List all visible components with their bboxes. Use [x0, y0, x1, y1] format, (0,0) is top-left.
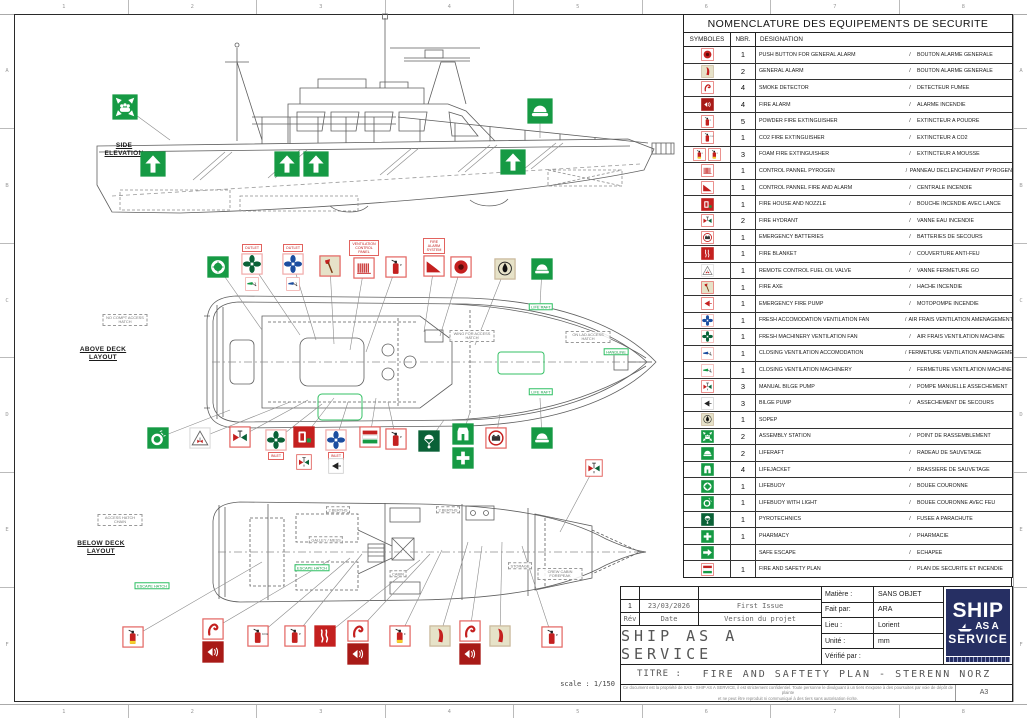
revision-desc: First Issue — [699, 600, 821, 612]
designation-cell: CO2 FIRE EXTINGUISHER/EXTINCTEUR A CO2 — [756, 130, 1012, 146]
designation-cell: CONTROL PANNEL FIRE AND ALARM/CENTRALE I… — [756, 180, 1012, 196]
fire-blanket-icon — [701, 247, 714, 260]
closing-vent-green-icon — [701, 364, 714, 377]
safety-plan-icon — [701, 563, 714, 576]
smoke-detector-icon — [347, 620, 369, 642]
table-row: SAFE ESCAPE/ECHAPEE — [684, 545, 1012, 562]
deck-tag: ESCAPE HATCH — [295, 564, 330, 571]
field-value: Lorient — [874, 622, 943, 629]
symbol-cell: FF — [684, 147, 731, 163]
table-row: FF3FOAM FIRE EXTINGUISHER/EXTINCTEUR A M… — [684, 147, 1012, 164]
deck-tag: WING FOR ACCESS HATCH — [450, 330, 495, 342]
closing-vent-blue-icon — [701, 347, 714, 360]
bilge-pump-icon — [701, 397, 714, 410]
marker-label: OUTLET — [283, 244, 303, 252]
designation-separator: / — [905, 284, 915, 290]
designation-cell: CLOSING VENTILATION ACCOMODATION/FERMETU… — [756, 346, 1012, 362]
designation-cell: PYROTECHNICS/FUSEE A PARACHUTE — [756, 512, 1012, 528]
designation-separator: / — [905, 550, 915, 556]
designation-cell: FIRE ALARM/ALARME INCENDIE — [756, 97, 1012, 113]
deck-tag: 2 BERTHS — [326, 506, 350, 513]
sopep-icon — [701, 413, 714, 426]
designation-cell: PHARMACY/PHARMACIE — [756, 528, 1012, 544]
fan-green-icon — [265, 429, 287, 451]
designation-en: CLOSING VENTILATION MACHINERY — [756, 367, 905, 373]
designation-fr: ECHAPEE — [915, 550, 1012, 556]
emergency-batteries-marker — [485, 427, 507, 449]
revision-date: 23/03/2026 — [640, 600, 699, 612]
table-row: 2LIFERAFT/RADEAU DE SAUVETAGE — [684, 445, 1012, 462]
designation-cell: FRESH MACHINERY VENTILATION FAN/AIR FRAI… — [756, 329, 1012, 345]
qty-cell: 1 — [731, 180, 756, 196]
ext-foam-icon: F — [708, 148, 721, 161]
designation-separator: / — [905, 102, 915, 108]
side-label-line1: SIDE — [84, 142, 164, 150]
designation-en: MANUAL BILGE PUMP — [756, 384, 905, 390]
arrow-up-marker — [303, 151, 329, 177]
designation-cell: SAFE ESCAPE/ECHAPEE — [756, 545, 1012, 561]
designation-cell: CLOSING VENTILATION MACHINERY/FERMETURE … — [756, 362, 1012, 378]
below-label-line2: LAYOUT — [46, 548, 156, 556]
designation-en: PUSH BUTTON FOR GENERAL ALARM — [756, 52, 905, 58]
ext-powder-icon: P — [701, 115, 714, 128]
deck-tag: GALLEY / MESS — [309, 536, 343, 543]
deck-tag: LIFE RAFT — [529, 388, 553, 395]
table-row: 1LIFEBUOY/BOUEE COURONNE — [684, 478, 1012, 495]
ext-foam-icon: F — [693, 148, 706, 161]
fire-house-nozzle-icon — [293, 426, 315, 448]
designation-fr: BOUCHE INCENDIE AVEC LANCE — [915, 201, 1012, 207]
symbol-cell — [684, 213, 731, 229]
designation-en: ASSEMBLY STATION — [756, 433, 905, 439]
smoke-detector-marker — [459, 620, 481, 642]
smoke-detector-marker — [347, 620, 369, 642]
symbol-cell — [684, 429, 731, 445]
manual-bilge-pump-icon — [585, 459, 603, 477]
qty-cell: 1 — [731, 346, 756, 362]
smoke-detector-icon — [459, 620, 481, 642]
designation-en: FRESH ACCOMODATION VENTILATION FAN — [756, 317, 905, 323]
arrow-up-marker — [274, 151, 300, 177]
designation-separator: / — [905, 68, 915, 74]
designation-en: PHARMACY — [756, 533, 905, 539]
designation-en: FIRE ALARM — [756, 102, 905, 108]
symbol-cell — [684, 346, 731, 362]
bilge-pump-icon — [328, 458, 344, 474]
designation-fr: ASSECHEMENT DE SECOURS — [915, 400, 1012, 406]
svg-text:P: P — [299, 632, 301, 636]
fire-alarm-icon — [202, 641, 224, 663]
qty-cell: 4 — [731, 97, 756, 113]
arrow-up-icon — [274, 151, 300, 177]
arrow-up-marker — [500, 149, 526, 175]
symbol-cell — [684, 462, 731, 478]
ext-powder-marker: P — [385, 256, 407, 278]
symbol-cell — [684, 263, 731, 279]
designation-separator: / — [905, 135, 915, 141]
svg-text:P: P — [400, 263, 402, 267]
designation-fr: PHARMACIE — [915, 533, 1012, 539]
logo-service-text: SERVICE — [948, 633, 1007, 645]
liferaft-icon — [531, 258, 553, 280]
designation-separator: / — [905, 52, 915, 58]
symbol-cell — [684, 230, 731, 246]
qty-cell: 5 — [731, 113, 756, 129]
revision-header-date: Date — [640, 613, 699, 625]
deck-tag: 2 BERTHS — [436, 506, 460, 513]
designation-cell: MANUAL BILGE PUMP/POMPE MANUELLE ASSECHE… — [756, 379, 1012, 395]
designation-cell: BILGE PUMP/ASSECHEMENT DE SECOURS — [756, 395, 1012, 411]
designation-cell: LIFERAFT/RADEAU DE SAUVETAGE — [756, 445, 1012, 461]
designation-separator: / — [905, 516, 915, 522]
general-alarm-icon — [701, 65, 714, 78]
designation-en: FIRE BLANKET — [756, 251, 905, 257]
designation-fr: RADEAU DE SAUVETAGE — [915, 450, 1012, 456]
designation-separator: / — [905, 85, 915, 91]
designation-fr: FUSEE A PARACHUTE — [915, 516, 1012, 522]
fire-axe-icon — [701, 281, 714, 294]
deck-tag: HANDLINE — [604, 348, 629, 355]
field-row: Fait par:ARA — [822, 603, 943, 619]
symbol-cell — [684, 196, 731, 212]
symbol-cell — [684, 561, 731, 577]
designation-fr: MOTOPOMPE INCENDIE — [915, 301, 1012, 307]
table-row: 1FIRE BLANKET/COUVERTURE ANTI-FEU — [684, 246, 1012, 263]
designation-cell: EMERGENCY BATTERIES/BATTERIES DE SECOURS — [756, 230, 1012, 246]
arrow-up-icon — [303, 151, 329, 177]
table-row: 1FIRE AND SAFETY PLAN/PLAN DE SECURITE E… — [684, 561, 1012, 577]
pharmacy-icon — [701, 530, 714, 543]
fire-hydrant-icon — [701, 214, 714, 227]
fire-axe-icon — [319, 255, 341, 277]
table-row: 1FRESH ACCOMODATION VENTILATION FAN/AIR … — [684, 313, 1012, 330]
manual-bilge-pump-icon — [701, 380, 714, 393]
designation-cell: FIRE AXE/HACHE INCENDIE — [756, 279, 1012, 295]
designation-cell: LIFEJACKET/BRASSIERE DE SAUVETAGE — [756, 462, 1012, 478]
designation-separator: / — [905, 218, 915, 224]
designation-cell: SMOKE DETECTOR/DETECTEUR FUMEE — [756, 80, 1012, 96]
fire-alarm-marker — [459, 643, 481, 665]
designation-cell: SOPEP — [756, 412, 1012, 428]
deck-tag: STORAGE — [508, 562, 532, 569]
lifebuoy-light-icon — [701, 496, 714, 509]
table-row: 1LIFEBUOY WITH LIGHT/BOUEE COURONNE AVEC… — [684, 495, 1012, 512]
symbol-cell — [684, 329, 731, 345]
emergency-batteries-icon — [701, 231, 714, 244]
revision-row-values: 1 23/03/2026 First Issue — [621, 600, 821, 613]
table-row: 1FIRE AXE/HACHE INCENDIE — [684, 279, 1012, 296]
designation-fr: AIR FRAIS VENTILATION AMENAGEMENT — [906, 317, 1012, 323]
lifebuoy-icon — [701, 480, 714, 493]
revision-header-desc: Version du projet — [699, 613, 821, 625]
lifejacket-icon — [452, 423, 474, 445]
manual-bilge-pump-marker — [585, 459, 603, 477]
qty-cell: 4 — [731, 462, 756, 478]
deck-tag: NO COMPT ACCESS HATCH — [103, 314, 148, 326]
symbol-cell — [684, 362, 731, 378]
symbol-cell — [684, 395, 731, 411]
bilge-pump-marker — [328, 458, 344, 474]
designation-separator: / — [905, 400, 915, 406]
assembly-station-icon — [112, 94, 138, 120]
fire-house-nozzle-marker — [293, 426, 315, 448]
table-row: 4LIFEJACKET/BRASSIERE DE SAUVETAGE — [684, 462, 1012, 479]
qty-cell: 1 — [731, 263, 756, 279]
ext-co2-icon: CO2 — [247, 625, 269, 647]
symbol-cell — [684, 64, 731, 80]
qty-cell: 1 — [731, 561, 756, 577]
designation-en: REMOTE CONTROL FUEL OIL VALVE — [756, 268, 905, 274]
designation-fr: FERMETURE VENTILATION MACHINE — [915, 367, 1012, 373]
marker-label: VENTILATION CONTROL PANEL — [349, 240, 378, 256]
qty-cell: 3 — [731, 395, 756, 411]
table-row: 2FIRE HYDRANT/VANNE EAU INCENDIE — [684, 213, 1012, 230]
field-label: Unité : — [822, 634, 874, 649]
logo-asa-text: AS A — [975, 622, 999, 632]
ext-powder-icon: P — [385, 256, 407, 278]
fan-green-icon — [241, 253, 263, 275]
field-value: SANS OBJET — [874, 591, 943, 598]
designation-fr: POINT DE RASSEMBLEMENT — [915, 433, 1012, 439]
qty-cell: 1 — [731, 130, 756, 146]
designation-separator: / — [905, 118, 915, 124]
symbol-cell — [684, 163, 731, 179]
disclaimer-line2: et ne peut être reproduit ni communiqué … — [621, 696, 955, 701]
designation-separator: / — [905, 251, 915, 257]
field-row: Unité :mm — [822, 634, 943, 650]
qty-cell: 2 — [731, 64, 756, 80]
fire-axe-marker — [319, 255, 341, 277]
table-row: 1EMERGENCY BATTERIES/BATTERIES DE SECOUR… — [684, 230, 1012, 247]
designation-cell: FIRE HYDRANT/VANNE EAU INCENDIE — [756, 213, 1012, 229]
fan-green-marker: INLET — [265, 429, 287, 451]
designation-en: CONTROL PANNEL FIRE AND ALARM — [756, 185, 905, 191]
symbol-cell: CO2 — [684, 130, 731, 146]
general-alarm-marker — [489, 625, 511, 647]
table-row: 1EMERGENCY FIRE PUMP/MOTOPOMPE INCENDIE — [684, 296, 1012, 313]
fan-blue-marker: OUTLET — [282, 253, 304, 275]
arrow-up-marker — [140, 151, 166, 177]
ext-powder-marker: P — [541, 626, 563, 648]
title-row: TITRE : FIRE AND SAFTETY PLAN - STERENN … — [621, 665, 1012, 685]
manual-bilge-pump-icon — [296, 454, 312, 470]
table-row: 2ASSEMBLY STATION/POINT DE RASSEMBLEMENT — [684, 429, 1012, 446]
qty-cell: 1 — [731, 478, 756, 494]
designation-fr: ALARME INCENDIE — [915, 102, 1012, 108]
designation-separator: / — [905, 566, 915, 572]
symbol-cell — [684, 180, 731, 196]
svg-text:P: P — [400, 435, 402, 439]
svg-text:P: P — [556, 633, 558, 637]
fan-blue-icon — [701, 314, 714, 327]
nomenclature-table: NOMENCLATURE DES EQUIPEMENTS DE SECURITE… — [683, 14, 1013, 578]
qty-cell: 2 — [731, 445, 756, 461]
fire-blanket-marker — [314, 625, 336, 647]
qty-cell: 1 — [731, 196, 756, 212]
closing-vent-green-marker — [245, 277, 259, 291]
assembly-station-icon — [701, 430, 714, 443]
designation-cell: LIFEBUOY WITH LIGHT/BOUEE COURONNE AVEC … — [756, 495, 1012, 511]
logo-banner — [946, 657, 1010, 662]
designation-fr: PANNEAU DECLENCHEMENT PYROGEN — [908, 168, 1012, 174]
symbol-cell: P — [684, 113, 731, 129]
table-row: 1CONTROL PANNEL PYROGEN/PANNEAU DECLENCH… — [684, 163, 1012, 180]
disclaimer-line1: Ce document est la propriété de SAS - SH… — [621, 685, 955, 696]
designation-separator: / — [905, 450, 915, 456]
fire-alarm-marker — [202, 641, 224, 663]
qty-cell: 1 — [731, 528, 756, 544]
arrow-up-icon — [500, 149, 526, 175]
ext-powder-icon: P — [541, 626, 563, 648]
designation-fr: EXTINCTEUR A MOUSSE — [915, 151, 1012, 157]
qty-cell: 1 — [731, 246, 756, 262]
designation-cell: FIRE HOUSE AND NOZZLE/BOUCHE INCENDIE AV… — [756, 196, 1012, 212]
designation-en: EMERGENCY BATTERIES — [756, 234, 905, 240]
designation-separator: / — [905, 500, 915, 506]
designation-cell: ASSEMBLY STATION/POINT DE RASSEMBLEMENT — [756, 429, 1012, 445]
designation-cell: POWDER FIRE EXTINGUISHER/EXTINCTEUR A PO… — [756, 113, 1012, 129]
deck-tag: CABIN — [390, 570, 407, 577]
disclaimer-text: Ce document est la propriété de SAS - SH… — [621, 685, 955, 701]
designation-en: FIRE AXE — [756, 284, 905, 290]
assembly-station-marker — [112, 94, 138, 120]
general-alarm-icon — [429, 625, 451, 647]
qty-cell: 3 — [731, 379, 756, 395]
above-deck-label: ABOVE DECK LAYOUT — [48, 346, 158, 362]
qty-cell: 1 — [731, 296, 756, 312]
svg-text:CO2: CO2 — [262, 632, 269, 636]
designation-en: LIFEBUOY — [756, 483, 905, 489]
ext-foam-icon: F — [389, 625, 411, 647]
designation-separator: / — [905, 334, 915, 340]
designation-fr: VANNE EAU INCENDIE — [915, 218, 1012, 224]
field-label: Vérifié par : — [822, 649, 861, 664]
revision-header-rev: Rév — [621, 613, 640, 625]
table-row: 1SOPEP — [684, 412, 1012, 429]
pyrotechnics-marker — [418, 430, 440, 452]
qty-cell: 1 — [731, 362, 756, 378]
svg-text:F: F — [137, 633, 139, 637]
designation-en: CO2 FIRE EXTINGUISHER — [756, 135, 905, 141]
designation-fr: EXTINCTEUR A CO2 — [915, 135, 1012, 141]
svg-text:F: F — [404, 632, 406, 636]
marker-label: INLET — [268, 452, 284, 460]
lifejacket-marker — [452, 423, 474, 445]
designation-fr: CENTRALE INCENDIE — [915, 185, 1012, 191]
drawing-sheet: 12345678 12345678 ABCDEF ABCDEF — [0, 0, 1027, 718]
revision-row-empty — [621, 587, 821, 600]
qty-cell: 1 — [731, 313, 756, 329]
ext-powder-icon: P — [284, 625, 306, 647]
deck-tag: ON LAD ACCESS HATCH — [566, 331, 611, 343]
designation-separator: / — [905, 384, 915, 390]
designation-fr: HACHE INCENDIE — [915, 284, 1012, 290]
header-symbols: SYMBOLES — [684, 33, 731, 46]
qty-cell: 1 — [731, 512, 756, 528]
table-header-row: SYMBOLES NBR. DESIGNATION — [684, 33, 1012, 47]
lifejacket-icon — [701, 463, 714, 476]
table-row: 4SMOKE DETECTOR/DETECTEUR FUMEE — [684, 80, 1012, 97]
table-row: 1FRESH MACHINERY VENTILATION FAN/AIR FRA… — [684, 329, 1012, 346]
lifebuoy-marker — [207, 256, 229, 278]
table-row: P5POWDER FIRE EXTINGUISHER/EXTINCTEUR A … — [684, 113, 1012, 130]
symbol-cell — [684, 445, 731, 461]
ext-co2-marker: CO2 — [247, 625, 269, 647]
qty-cell: 1 — [731, 163, 756, 179]
remote-fuel-valve-marker — [189, 427, 211, 449]
symbol-cell — [684, 495, 731, 511]
table-row: 2GENERAL ALARM/BOUTON ALARME GENERALE — [684, 64, 1012, 81]
designation-en: FIRE AND SAFETY PLAN — [756, 566, 905, 572]
fire-alarm-icon — [701, 98, 714, 111]
ext-co2-icon: CO2 — [701, 131, 714, 144]
company-name: SHIP AS A SERVICE — [621, 626, 821, 664]
smoke-detector-icon — [701, 81, 714, 94]
disclaimer-row: Ce document est la propriété de SAS - SH… — [621, 685, 1012, 701]
document-title: FIRE AND SAFTETY PLAN - STERENN NORZ — [682, 669, 1012, 680]
panel-pyrogen-icon — [353, 257, 375, 279]
title-block: 1 23/03/2026 First Issue Rév Date Versio… — [620, 586, 1013, 702]
revision-table: 1 23/03/2026 First Issue Rév Date Versio… — [621, 587, 822, 664]
designation-separator: / — [905, 533, 915, 539]
field-label: Fait par: — [822, 603, 874, 618]
below-label-line1: BELOW DECK — [46, 540, 156, 548]
below-deck-label: BELOW DECK LAYOUT — [46, 540, 156, 556]
closing-vent-blue-icon — [286, 277, 300, 291]
ext-foam-icon: F — [122, 626, 144, 648]
safety-plan-marker — [359, 426, 381, 448]
liferaft-marker — [531, 427, 553, 449]
liferaft-marker — [527, 98, 553, 124]
safe-escape-icon — [701, 546, 714, 559]
symbol-cell — [684, 97, 731, 113]
designation-en: POWDER FIRE EXTINGUISHER — [756, 118, 905, 124]
revision-row-headers: Rév Date Version du projet — [621, 613, 821, 626]
lifebuoy-icon — [207, 256, 229, 278]
designation-en: EMERGENCY FIRE PUMP — [756, 301, 905, 307]
designation-fr: POMPE MANUELLE ASSECHEMENT — [915, 384, 1012, 390]
closing-vent-blue-marker — [286, 277, 300, 291]
deck-tag: LIFE RAFT — [529, 303, 553, 310]
designation-separator: / — [905, 185, 915, 191]
pyrotechnics-icon — [701, 513, 714, 526]
titre-label: TITRE : — [621, 669, 682, 679]
table-row: 3MANUAL BILGE PUMP/POMPE MANUELLE ASSECH… — [684, 379, 1012, 396]
pharmacy-icon — [452, 447, 474, 469]
logo-ship-text: SHIP — [952, 600, 1003, 621]
symbol-cell — [684, 545, 731, 561]
qty-cell: 1 — [731, 495, 756, 511]
safety-plan-icon — [359, 426, 381, 448]
fan-green-icon — [701, 330, 714, 343]
qty-cell: 4 — [731, 80, 756, 96]
liferaft-icon — [531, 427, 553, 449]
designation-en: SMOKE DETECTOR — [756, 85, 905, 91]
designation-fr: AIR FRAIS VENTILATION MACHINE — [915, 334, 1012, 340]
fan-blue-icon — [282, 253, 304, 275]
fire-alarm-marker — [347, 643, 369, 665]
push-button-icon — [701, 48, 714, 61]
panel-fire-alarm-icon — [423, 255, 445, 277]
symbol-cell — [684, 412, 731, 428]
fire-alarm-icon — [347, 643, 369, 665]
fire-alarm-icon — [459, 643, 481, 665]
panel-fire-alarm-marker: FIRE ALARM SYSTEM — [423, 255, 445, 277]
designation-separator: / — [905, 301, 915, 307]
designation-cell: EMERGENCY FIRE PUMP/MOTOPOMPE INCENDIE — [756, 296, 1012, 312]
liferaft-marker — [531, 258, 553, 280]
table-row: 4FIRE ALARM/ALARME INCENDIE — [684, 97, 1012, 114]
